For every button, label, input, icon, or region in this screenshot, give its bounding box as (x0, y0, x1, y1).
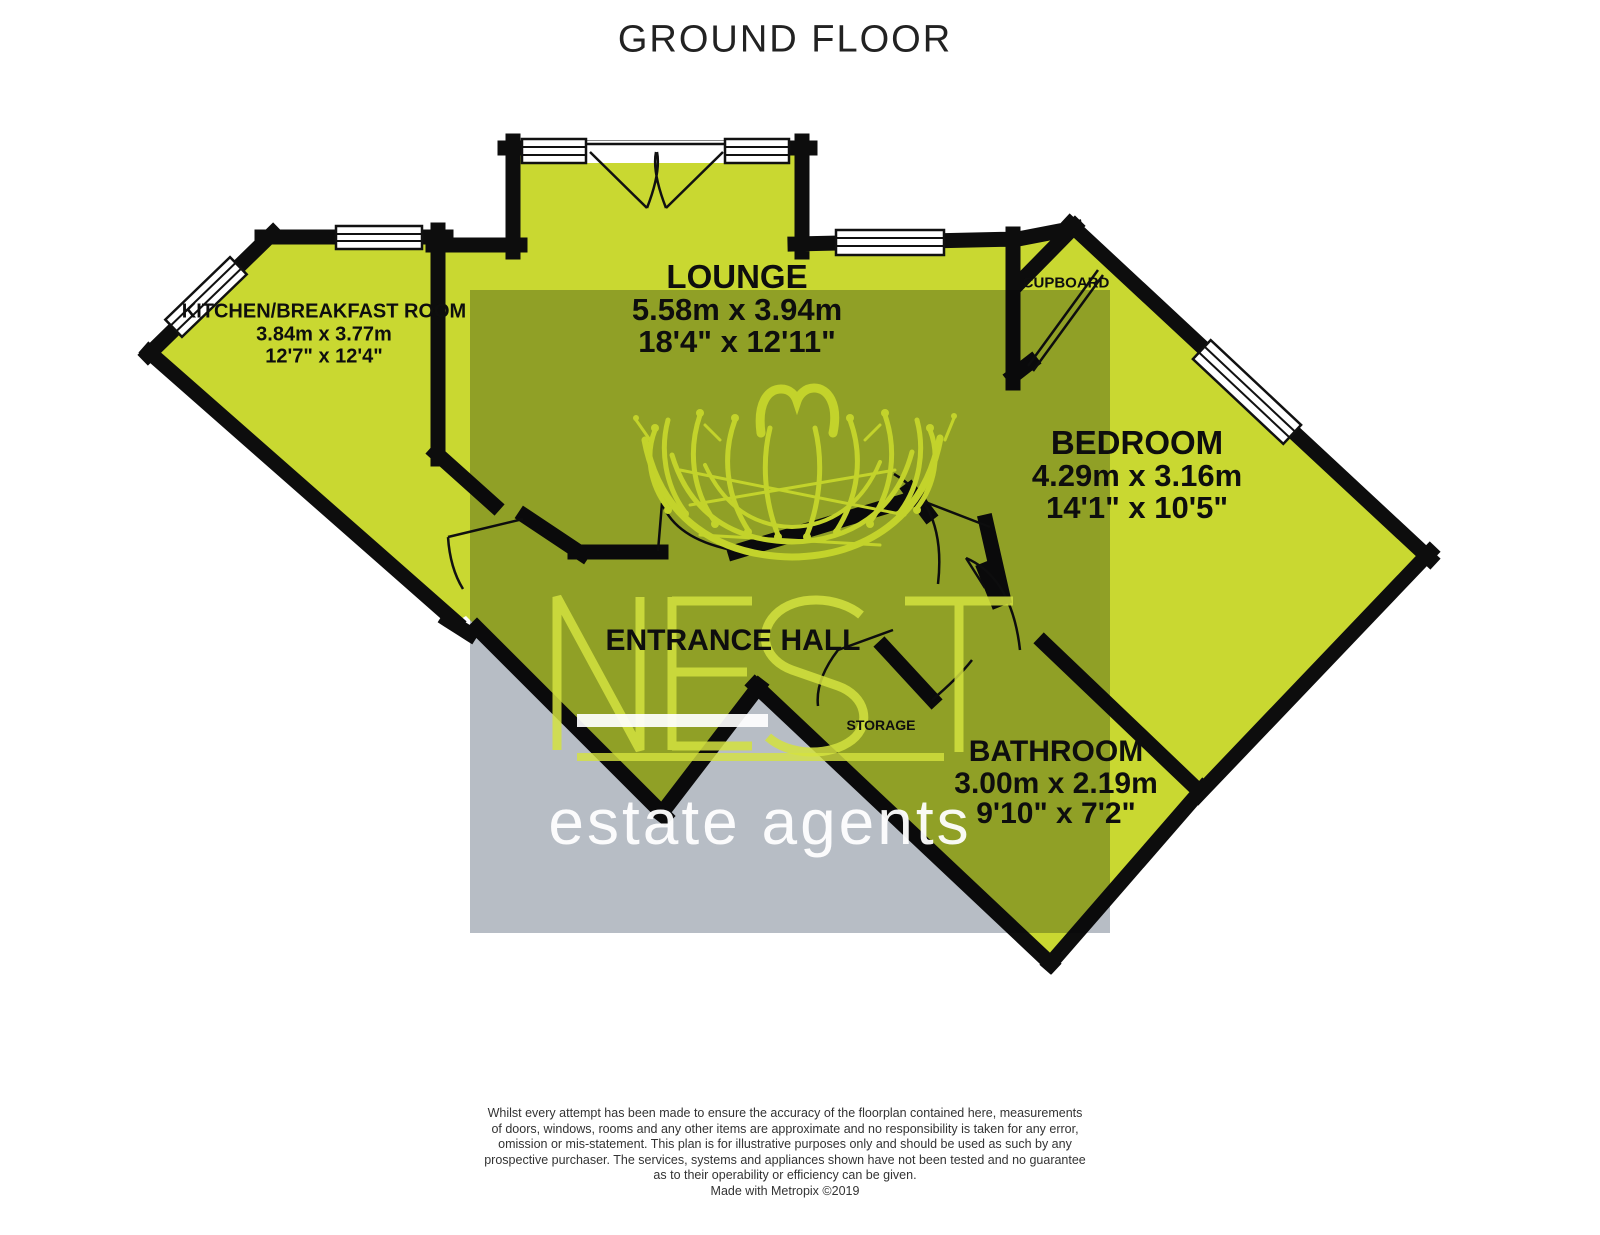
window-lounge-left (522, 139, 586, 163)
room-dim-kitchen-metric: 3.84m x 3.77m (256, 324, 392, 347)
room-label-cupboard: CUPBOARD (1023, 275, 1110, 292)
disclaimer-line: omission or mis-statement. This plan is … (484, 1137, 1086, 1153)
window-lounge-side (836, 230, 944, 255)
room-label-bathroom: BATHROOM (969, 735, 1143, 769)
disclaimer-line: Whilst every attempt has been made to en… (484, 1106, 1086, 1122)
disclaimer-line: prospective purchaser. The services, sys… (484, 1153, 1086, 1169)
room-dim-lounge-imperial: 18'4" x 12'11" (638, 324, 836, 360)
room-dim-lounge-metric: 5.58m x 3.94m (632, 292, 842, 328)
room-label-storage: STORAGE (847, 717, 916, 733)
disclaimer-line: of doors, windows, rooms and any other i… (484, 1122, 1086, 1138)
room-dim-kitchen-imperial: 12'7" x 12'4" (265, 346, 382, 369)
disclaimer-line: as to their operability or efficiency ca… (484, 1168, 1086, 1184)
room-label-lounge: LOUNGE (666, 258, 807, 296)
logo-underline-yellow (577, 753, 944, 761)
room-label-kitchen: KITCHEN/BREAKFAST ROOM (182, 301, 466, 324)
window-lounge-right-top (725, 139, 789, 163)
credit-line: Made with Metropix ©2019 (484, 1184, 1086, 1200)
floorplan-page: GROUND FLOOR (0, 0, 1600, 1235)
room-dim-bathroom-metric: 3.00m x 2.19m (954, 767, 1157, 801)
logo-tagline: estate agents (548, 785, 971, 859)
room-dim-bedroom-metric: 4.29m x 3.16m (1032, 458, 1242, 494)
room-dim-bedroom-imperial: 14'1" x 10'5" (1046, 490, 1228, 526)
room-dim-bathroom-imperial: 9'10" x 7'2" (976, 797, 1136, 831)
room-label-entrance-hall: ENTRANCE HALL (606, 624, 861, 658)
window-kitchen-top (336, 226, 422, 249)
room-label-bedroom: BEDROOM (1051, 424, 1223, 462)
logo-underline-white (577, 714, 768, 727)
disclaimer: Whilst every attempt has been made to en… (484, 1106, 1086, 1200)
